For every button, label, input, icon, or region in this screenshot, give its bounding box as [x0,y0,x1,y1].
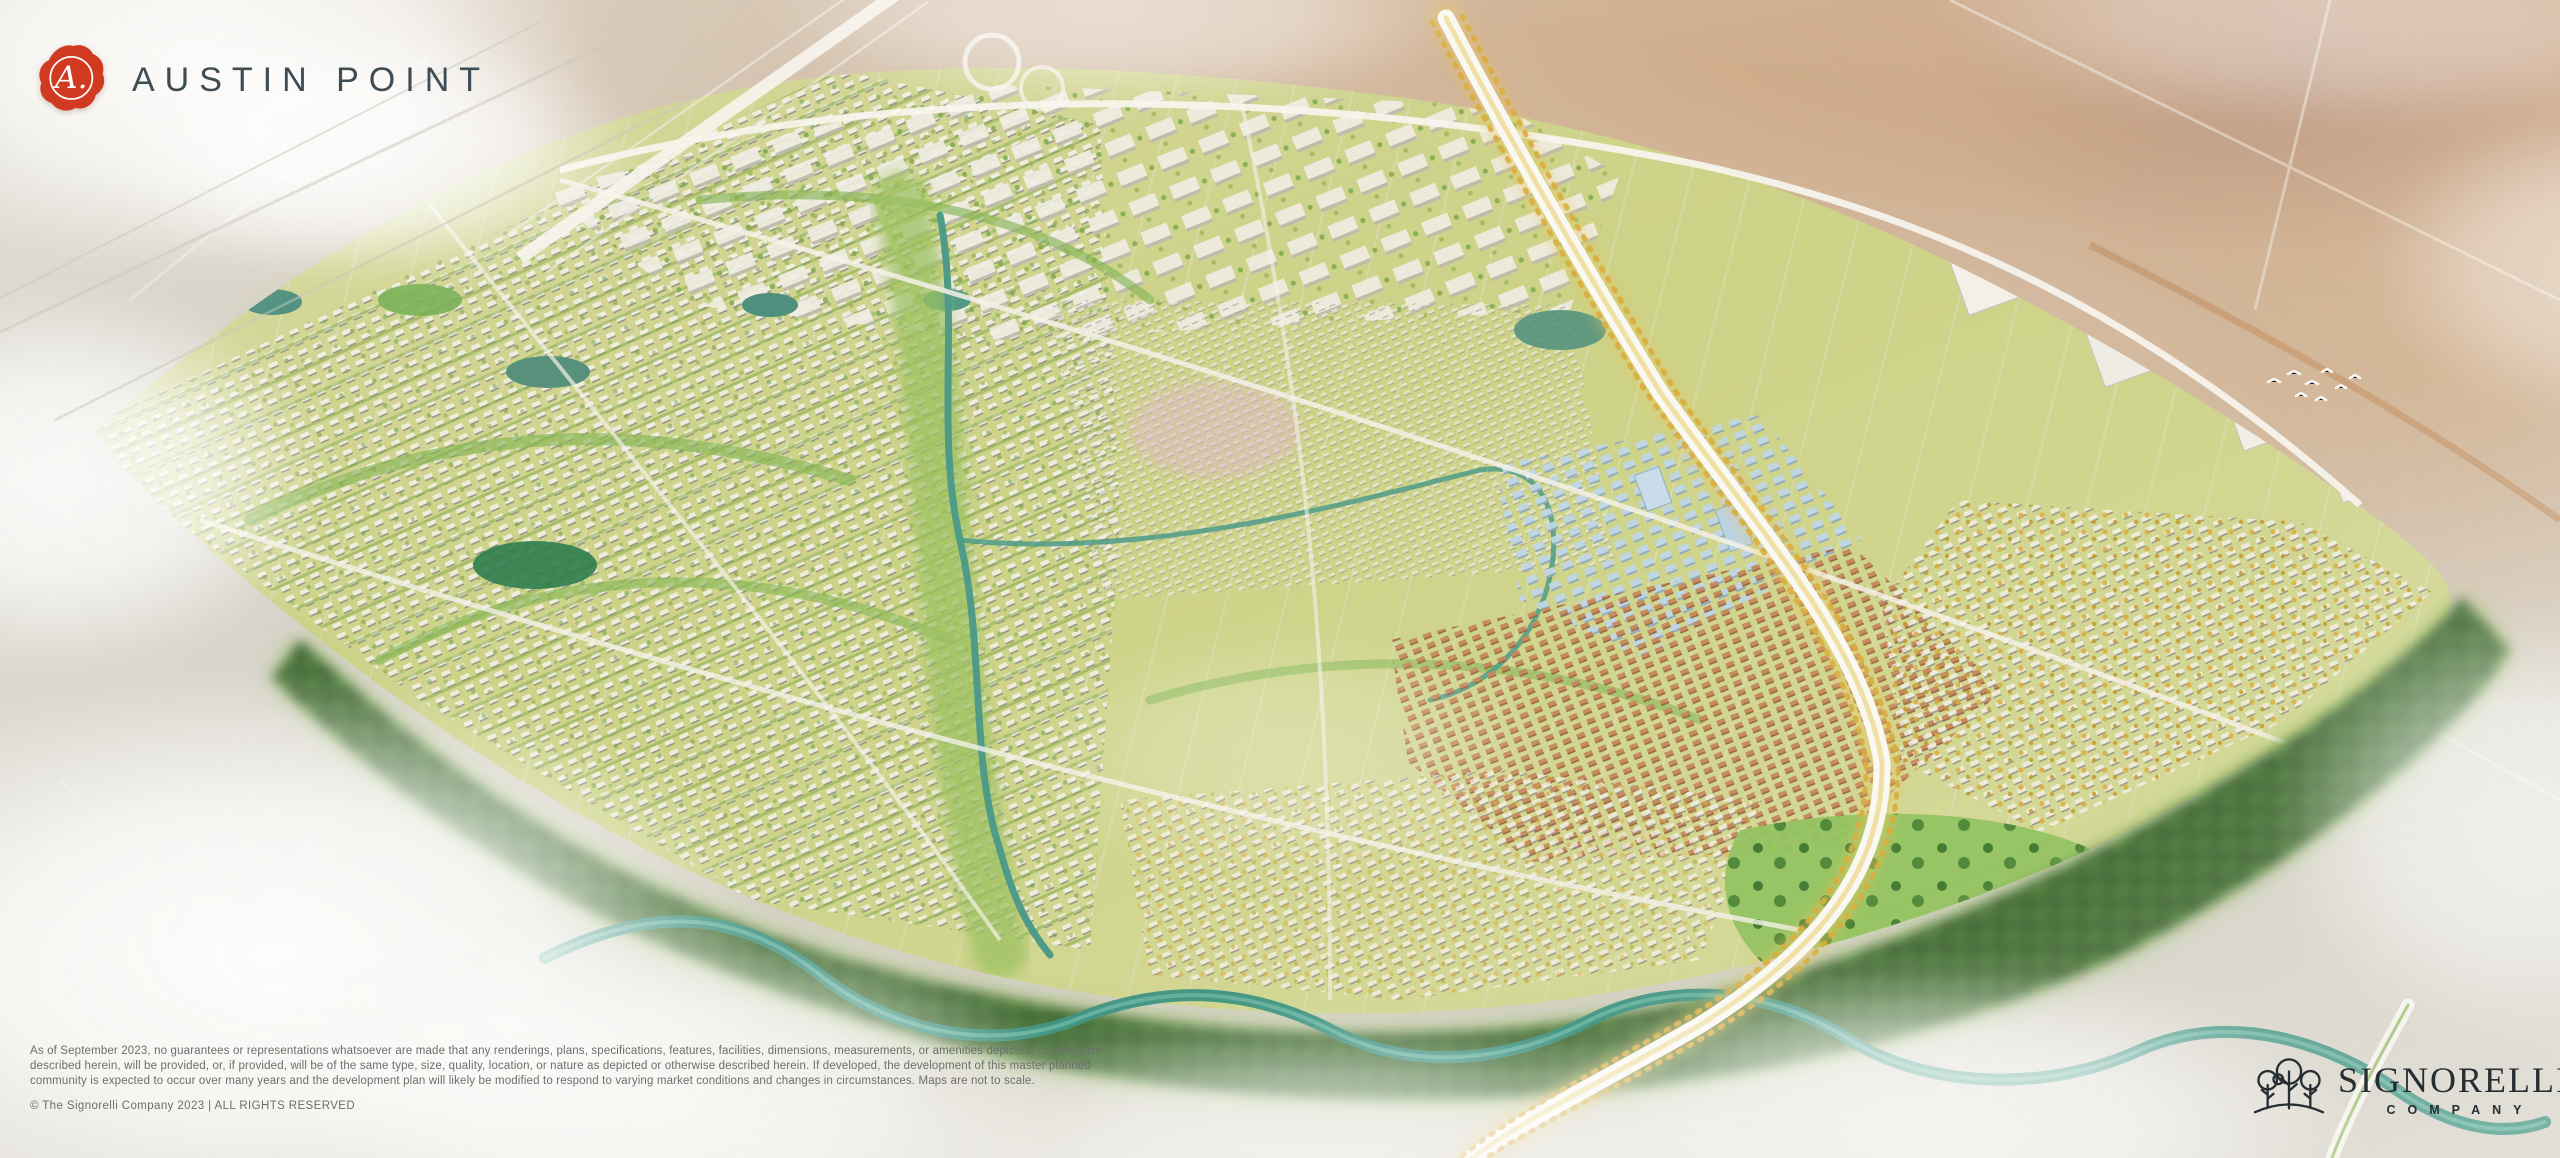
austin-point-logo: A. AUSTIN POINT [38,42,490,118]
copyright-line: © The Signorelli Company 2023 | ALL RIGH… [30,1099,1102,1114]
masterplan-render [0,0,2560,1158]
seal-monogram: A. [52,60,88,96]
austin-point-wordmark: AUSTIN POINT [132,61,490,100]
signorelli-trees-icon [2252,1056,2326,1120]
disclaimer-line: As of September 2023, no guarantees or r… [30,1044,1102,1059]
signorelli-logo: SIGNORELLI COMPANY [2252,1056,2560,1120]
austin-point-seal-icon: A. [38,42,106,118]
signorelli-text: SIGNORELLI COMPANY [2338,1059,2560,1117]
signorelli-wordmark: SIGNORELLI [2338,1059,2560,1101]
disclaimer-line: described herein, will be provided, or, … [30,1059,1102,1074]
disclaimer-line: community is expected to occur over many… [30,1074,1102,1089]
masterplan-poster: A. AUSTIN POINT As of September 2023, no… [0,0,2560,1158]
disclaimer: As of September 2023, no guarantees or r… [30,1044,1102,1114]
pink-district-tint [1130,382,1300,478]
signorelli-subtitle: COMPANY [2387,1103,2534,1117]
